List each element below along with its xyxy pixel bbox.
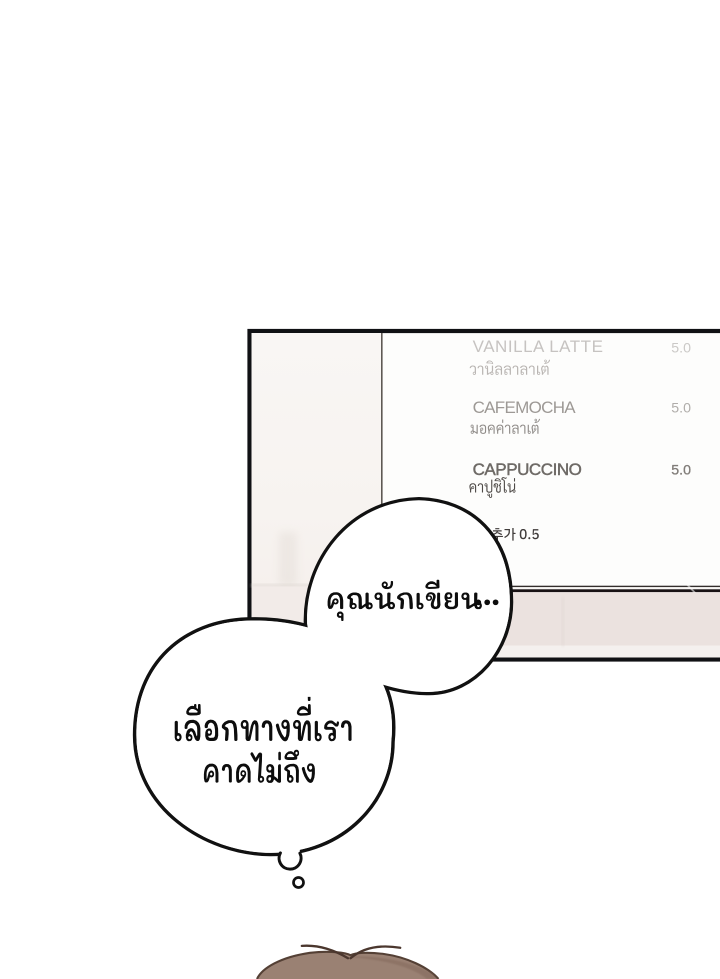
svg-text:CAFEMOCHA: CAFEMOCHA <box>473 398 577 417</box>
svg-text:5.0: 5.0 <box>671 463 691 479</box>
svg-text:5.0: 5.0 <box>671 401 691 417</box>
svg-text:VANILLA LATTE: VANILLA LATTE <box>473 337 604 356</box>
svg-text:5.0: 5.0 <box>671 340 691 356</box>
svg-text:CAPPUCCINO: CAPPUCCINO <box>473 460 582 479</box>
